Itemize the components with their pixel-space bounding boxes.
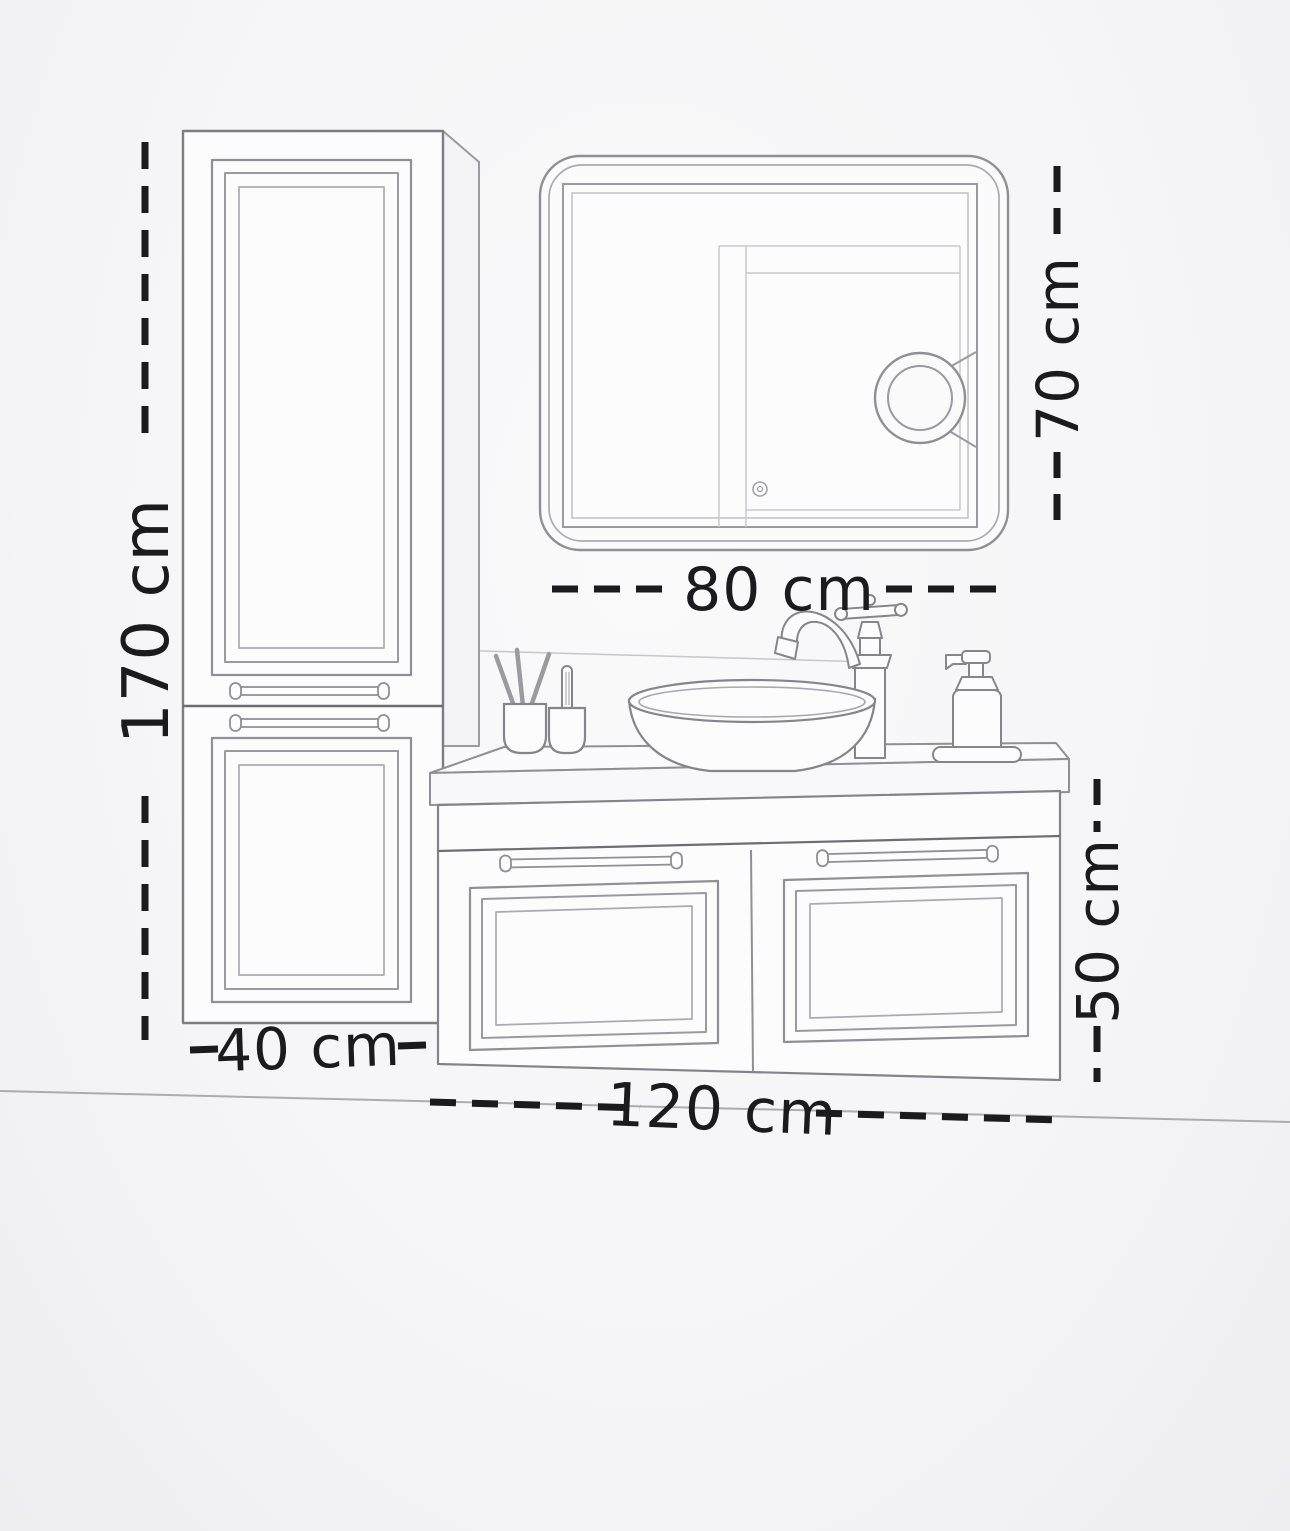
- brush-handle: [562, 666, 572, 711]
- tall-cabinet: [183, 131, 479, 1023]
- cup-2: [549, 708, 585, 753]
- label-tall-cabinet-width: 40 cm: [214, 1011, 402, 1085]
- dimension-mirror-width: 80 cm: [552, 555, 1002, 625]
- label-vanity-width: 120 cm: [605, 1070, 839, 1150]
- cup-1: [504, 704, 546, 753]
- sink: [629, 680, 875, 771]
- soap-bottle-body: [953, 690, 1001, 752]
- cup-sticks: [496, 650, 549, 706]
- soap-bottle-shoulder: [956, 677, 998, 690]
- label-tall-cabinet-height: 170 cm: [110, 498, 184, 744]
- soap-tray: [933, 747, 1021, 762]
- dimension-dash-40-right: [398, 1045, 426, 1046]
- tall-cabinet-front-face: [183, 131, 443, 1023]
- dimension-mirror-height: 70 cm: [1024, 166, 1092, 532]
- soap-pump-head: [962, 651, 990, 663]
- bathroom-vanity-dimension-diagram: 170 cm 40 cm 80 cm 70 cm 50 cm: [0, 0, 1290, 1531]
- diagram-stage: 170 cm 40 cm 80 cm 70 cm 50 cm: [0, 0, 1290, 1531]
- label-mirror-width: 80 cm: [683, 555, 875, 625]
- dimension-tall-cabinet-width: 40 cm: [190, 1011, 426, 1085]
- dimension-vanity-height: 50 cm: [1064, 779, 1132, 1082]
- vanity-unit: [430, 743, 1069, 1080]
- dimension-vanity-width: 120 cm: [430, 1070, 1060, 1150]
- brush-cups: [496, 650, 585, 753]
- dimension-tall-cabinet-height: 170 cm: [110, 142, 184, 1040]
- wall-line: [447, 650, 872, 662]
- mirror: [540, 156, 1008, 550]
- label-vanity-height: 50 cm: [1064, 838, 1132, 1024]
- dimension-dash-40-left: [190, 1049, 218, 1050]
- faucet-neck: [860, 638, 880, 655]
- faucet-spout-tip: [775, 637, 798, 659]
- tall-cabinet-side-face: [443, 131, 479, 746]
- label-mirror-height: 70 cm: [1024, 256, 1092, 442]
